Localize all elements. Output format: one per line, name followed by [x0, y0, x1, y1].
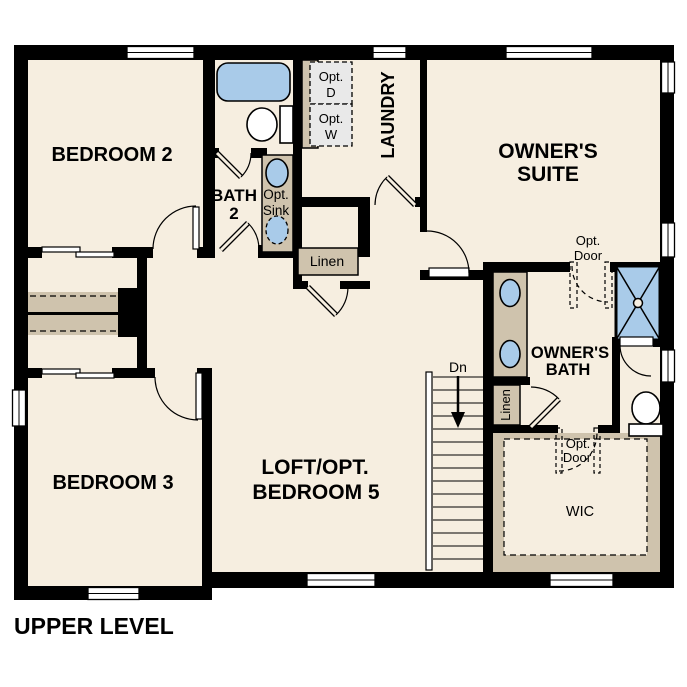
- window-bedroom3-left: [13, 390, 26, 426]
- label-bedroom-2: BEDROOM 2: [51, 144, 172, 166]
- label-owners-suite-line1: OWNER'S: [498, 140, 598, 163]
- window-wic-bottom: [550, 574, 613, 587]
- window-toilet-room-right: [662, 350, 675, 382]
- label-stairs-down: Dn: [449, 359, 467, 375]
- label-opt-door-suite-line2: Door: [574, 248, 603, 263]
- floor-plan-page: BEDROOM 2 BATH 2 Opt. Sink Opt. D Opt. W…: [0, 0, 687, 687]
- label-opt-sink-line1: Opt.: [263, 187, 289, 202]
- window-laundry-top: [373, 47, 406, 59]
- toilet-icon-bath2: [247, 106, 293, 143]
- toilet-icon-owners-bath: [629, 392, 663, 436]
- sink-icon: [500, 341, 520, 368]
- label-bedroom-3: BEDROOM 3: [52, 472, 173, 494]
- label-opt-door-suite-line1: Opt.: [576, 233, 601, 248]
- label-bath-2-line2: 2: [229, 204, 238, 223]
- window-owners-suite-top: [506, 47, 592, 59]
- window-owners-suite-right-lower: [662, 223, 675, 257]
- label-owners-suite-line2: SUITE: [517, 163, 579, 186]
- label-opt-washer-line2: W: [325, 127, 338, 142]
- label-bath-2-line1: BATH: [211, 186, 257, 205]
- stair-railing: [426, 372, 432, 570]
- window-bedroom2-top: [127, 47, 194, 59]
- shower-icon: [616, 266, 660, 340]
- sink-icon: [266, 159, 288, 187]
- label-owners-bath-line1: OWNER'S: [531, 344, 609, 362]
- label-linen-owners-bath: Linen: [498, 389, 513, 421]
- label-opt-sink-line2: Sink: [263, 203, 290, 218]
- window-loft-bottom: [307, 574, 375, 587]
- label-loft-line2: BEDROOM 5: [252, 481, 380, 504]
- label-opt-door-wic-line1: Opt.: [566, 436, 591, 451]
- optional-sink-icon: [266, 216, 288, 244]
- label-laundry: LAUNDRY: [378, 71, 398, 158]
- window-bedroom3-bottom: [88, 588, 139, 600]
- label-loft-line1: LOFT/OPT.: [261, 456, 368, 479]
- label-opt-door-wic-line2: Door: [563, 450, 592, 465]
- label-linen-hall: Linen: [310, 253, 344, 269]
- window-owners-suite-right-upper: [662, 62, 675, 93]
- owners-bath-vanity: [493, 272, 527, 377]
- label-opt-dryer-line2: D: [326, 85, 335, 100]
- bedroom2-closet-shelf: [28, 292, 118, 312]
- sink-icon: [500, 280, 520, 307]
- bedroom3-closet-shelf: [28, 315, 118, 335]
- label-opt-dryer-line1: Opt.: [319, 69, 344, 84]
- label-wic: WIC: [566, 504, 594, 520]
- label-opt-washer-line1: Opt.: [319, 111, 344, 126]
- floor-plan-upper-level: BEDROOM 2 BATH 2 Opt. Sink Opt. D Opt. W…: [0, 0, 687, 687]
- plan-title: UPPER LEVEL: [14, 613, 174, 639]
- label-owners-bath-line2: BATH: [546, 361, 591, 379]
- bathtub-icon: [217, 63, 290, 101]
